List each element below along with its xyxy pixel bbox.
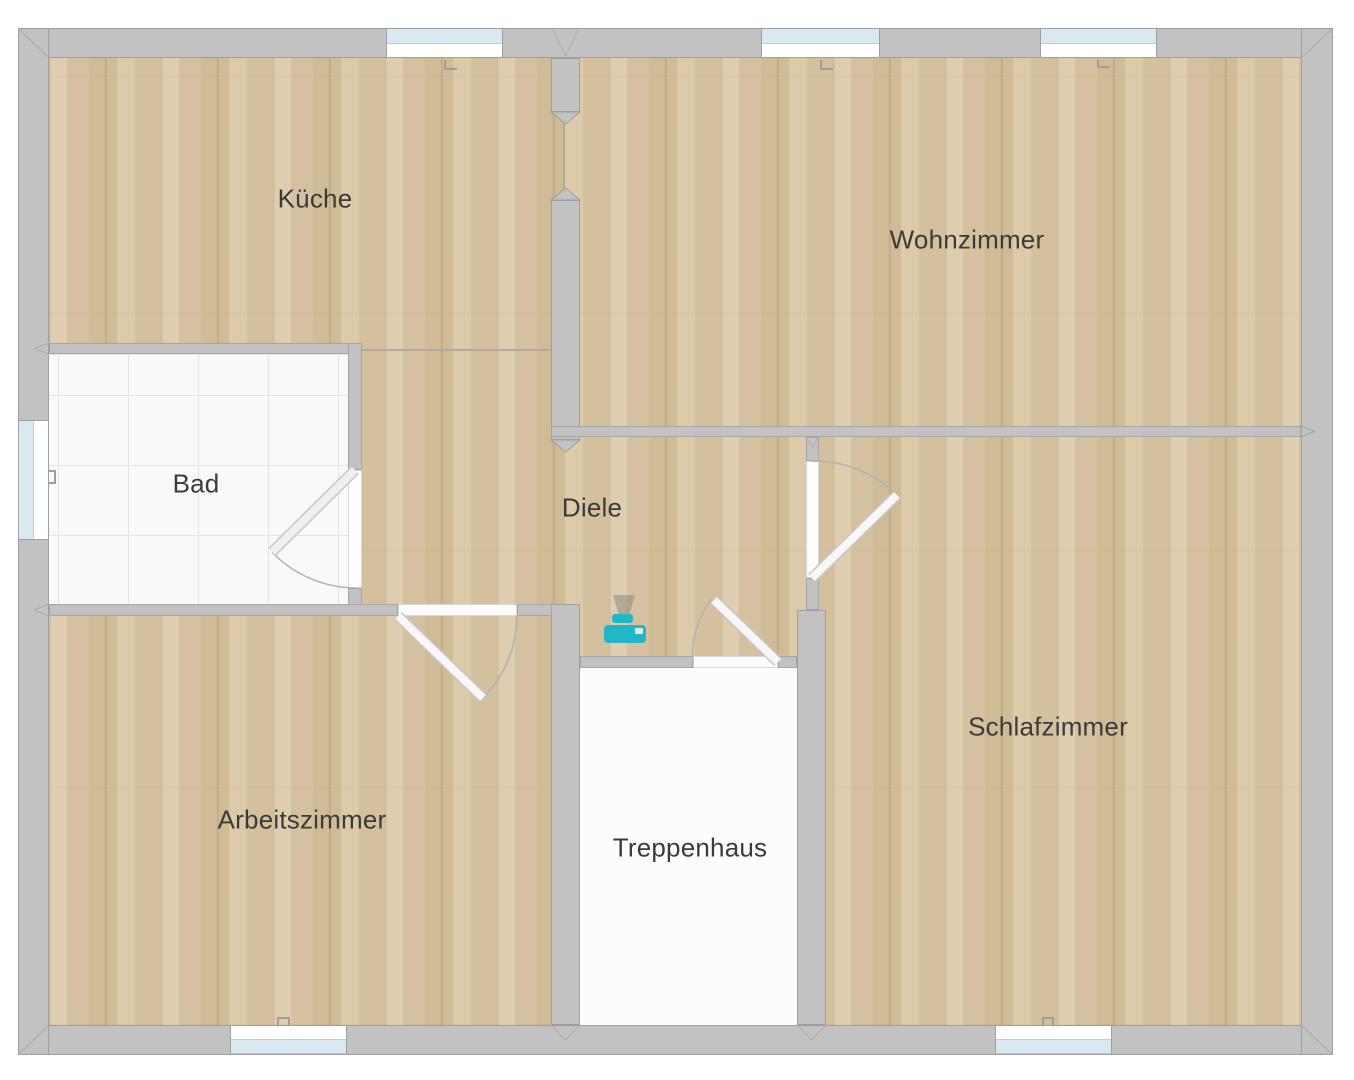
wall-bad-north (49, 343, 362, 354)
printer-icon (604, 595, 654, 645)
room-label-wohnzimmer: Wohnzimmer (890, 225, 1045, 256)
wall-treppenhaus-north-left (580, 656, 693, 668)
exterior-wall-right (1301, 28, 1333, 1055)
wall-bad-east-upper (348, 343, 362, 470)
door-threshold-treppenhaus (693, 656, 778, 668)
wall-bad-arbeitszimmer-south-left (49, 604, 398, 616)
floor-plan-canvas: Küche Wohnzimmer Bad Diele Arbeitszimmer… (0, 0, 1354, 1080)
room-label-arbeitszimmer: Arbeitszimmer (218, 805, 387, 836)
exterior-wall-bottom (18, 1025, 1333, 1055)
wall-bad-east-lower-stub (348, 588, 362, 605)
window-frame (231, 1026, 346, 1040)
wall-wohnzimmer-south (551, 426, 1301, 437)
room-label-kueche: Küche (278, 184, 353, 215)
door-threshold-arbeitszimmer (398, 604, 517, 616)
window-schlafzimmer-bottom (995, 1025, 1112, 1055)
wall-treppenhaus-north-right-stub (778, 656, 797, 668)
window-glass (1041, 29, 1156, 44)
window-frame (1041, 44, 1156, 58)
window-frame (387, 44, 502, 58)
wall-diele-arbeitszimmer-stub (517, 604, 552, 616)
wall-treppenhaus-schlafzimmer (797, 610, 826, 1025)
wall-kueche-wohnzimmer-upper (551, 58, 580, 112)
room-label-bad: Bad (173, 469, 220, 500)
door-threshold-bad (348, 470, 362, 588)
window-glass (996, 1040, 1111, 1054)
window-frame (996, 1026, 1111, 1040)
window-arbeitszimmer-bottom (230, 1025, 347, 1055)
window-kueche-top (386, 28, 503, 58)
wall-diele-schlafzimmer-lower-stub (806, 578, 819, 610)
exterior-wall-left (18, 28, 49, 1055)
window-frame (34, 421, 48, 539)
window-glass (231, 1040, 346, 1054)
room-label-treppenhaus: Treppenhaus (613, 833, 767, 864)
window-frame (762, 44, 879, 58)
wall-arbeitszimmer-treppenhaus (551, 604, 580, 1025)
wall-diele-schlafzimmer-upper-stub (806, 437, 819, 461)
window-glass (19, 421, 34, 539)
room-label-schlafzimmer: Schlafzimmer (968, 712, 1128, 743)
window-glass (762, 29, 879, 44)
window-wohnzimmer-top-right (1040, 28, 1157, 58)
window-bad-left (18, 420, 49, 540)
window-glass (387, 29, 502, 44)
wall-kueche-wohnzimmer-lower (551, 200, 580, 440)
printer-paper-funnel (613, 595, 635, 616)
printer-light (635, 628, 643, 634)
room-label-diele: Diele (562, 493, 622, 524)
printer-lid (612, 614, 633, 623)
window-wohnzimmer-top-left (761, 28, 880, 58)
door-threshold-schlafzimmer (806, 461, 819, 578)
